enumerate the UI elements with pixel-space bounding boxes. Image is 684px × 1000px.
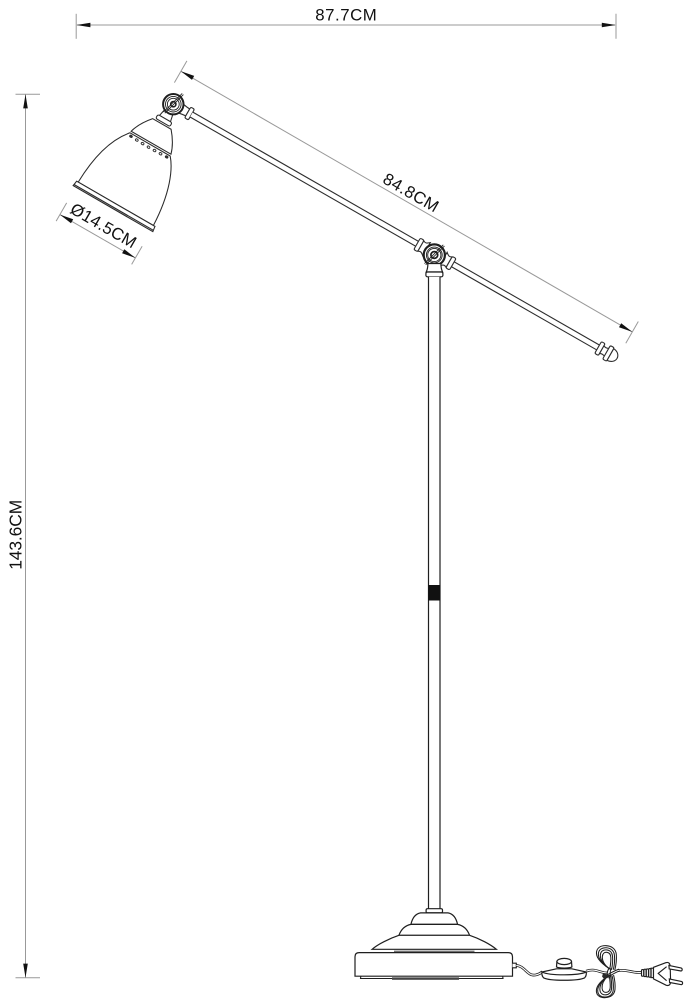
svg-text:84.8CM: 84.8CM [380, 169, 442, 216]
svg-text:87.7CM: 87.7CM [315, 5, 377, 24]
svg-text:143.6CM: 143.6CM [6, 500, 26, 570]
